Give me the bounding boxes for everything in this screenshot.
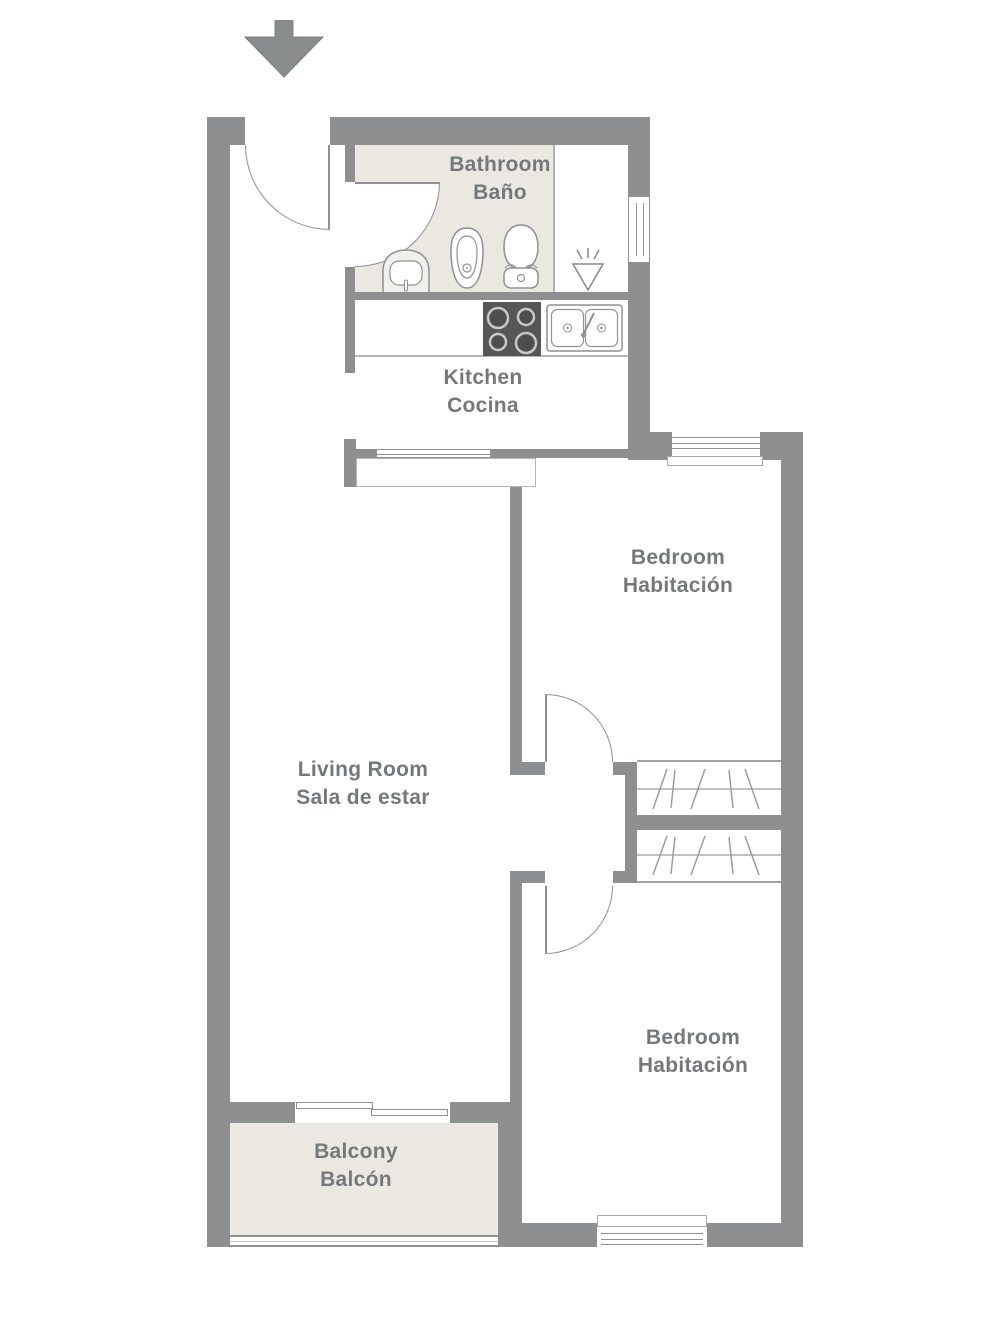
washbasin-icon [380,247,432,292]
wall-bathroom-b [345,267,355,292]
bedroom1-label-es: Habitación [585,572,771,600]
bathroom-label: Bathroom Baño [405,151,595,207]
kitchen-sink-icon [546,304,623,352]
living-room-label-en: Living Room [263,756,463,784]
bedroom2-door [545,886,613,954]
wardrobe-icon [637,762,781,815]
bathroom-label-en: Bathroom [405,151,595,179]
window-kitchen [377,449,490,458]
wall-bottom-b [707,1223,803,1247]
balcony-label-es: Balcón [266,1166,446,1194]
window-kitchen-glass [377,454,490,455]
bedroom1-label: Bedroom Habitación [585,544,771,600]
bedroom2-label-en: Bedroom [600,1024,786,1052]
living-room-label: Living Room Sala de estar [263,756,463,812]
window-bedroom2 [601,1233,703,1245]
wall-livingroom-bottom-a [228,1102,295,1123]
kitchen-label-en: Kitchen [390,364,576,392]
window-bedroom2-glass [601,1239,703,1240]
sliding-door-panel-2 [371,1109,448,1116]
bedroom1-label-en: Bedroom [585,544,771,572]
wall-left [207,117,230,1247]
window-bedroom1 [672,437,760,449]
balcony-label: Balcony Balcón [266,1138,446,1194]
wall-stub-bottom-left [510,871,545,883]
bidet-icon [449,226,485,290]
kitchen-label-es: Cocina [390,392,576,420]
bedroom2-label-es: Habitación [600,1052,786,1080]
wall-bathroom-a [345,145,355,182]
balcony-label-en: Balcony [266,1138,446,1166]
wall-balcony-right [498,1102,522,1247]
window-bedroom1-sill [667,456,763,466]
wall-right [781,458,803,1247]
wall-closet-middle [625,815,781,830]
bedroom1-door [545,694,613,762]
closet2-front-line [637,881,781,883]
wall-stub-bottom-right [613,871,637,883]
window-shower-glass [636,203,644,256]
wall-kitchen-left [345,300,355,373]
wall-kitchen-bottom-a [354,449,377,458]
shower-icon [570,247,606,293]
window-shower [628,196,650,263]
sliding-door-panel-1 [296,1102,373,1109]
wall-bedroom-top-b [760,432,803,460]
balcony-railing-line [230,1241,498,1242]
wall-top-main [330,117,650,145]
wall-kitchen-bottom-b [490,449,650,458]
wall-east-lower [628,263,650,460]
living-room-label-es: Sala de estar [263,784,463,812]
toilet-icon [501,223,541,290]
bathroom-label-es: Baño [405,179,595,207]
wall-bathroom-bottom [345,292,628,300]
stove-icon [483,302,541,356]
wall-east-upper [628,145,650,196]
bedroom2-label: Bedroom Habitación [600,1024,786,1080]
wall-stub-top-left [510,762,545,775]
window-kitchen-sill [356,458,536,487]
wardrobe-icon [637,830,781,881]
window-bedroom1-glass [672,443,760,444]
balcony-railing [230,1235,498,1247]
floor-plan: Bathroom Baño Kitchen Cocina Bedroom Hab… [0,0,992,1333]
entry-door [245,145,330,230]
kitchen-label: Kitchen Cocina [390,364,576,420]
window-bedroom2-sill [597,1215,707,1227]
wall-bedroom1-left [510,458,522,762]
wall-kitchen-post [344,439,356,487]
entrance-arrow-icon [240,20,328,78]
